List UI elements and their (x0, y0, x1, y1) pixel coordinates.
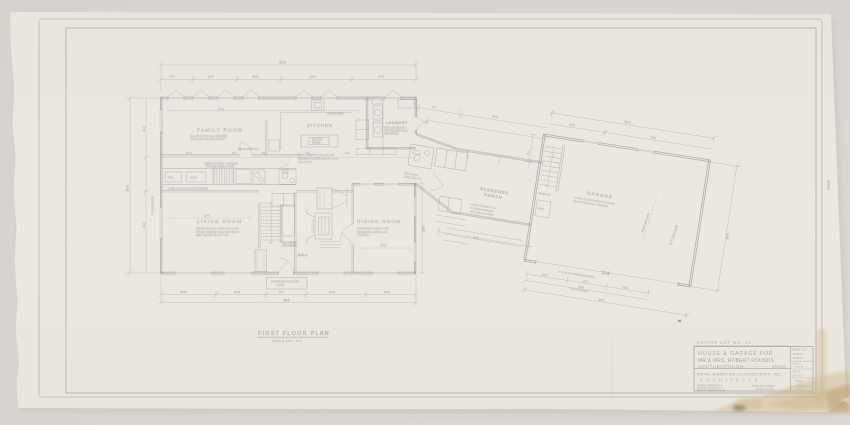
svg-text:VAN: VAN (168, 177, 173, 180)
svg-text:7-8: 7-8 (170, 75, 175, 79)
svg-text:24-6: 24-6 (422, 225, 426, 232)
svg-text:DRAWN CHK: DRAWN CHK (793, 349, 808, 352)
svg-text:10-0: 10-0 (234, 290, 240, 294)
svg-text:ARCHITECTS: ARCHITECTS (700, 378, 761, 383)
svg-text:17-2: 17-2 (218, 107, 224, 111)
svg-text:ROYAL BARRY WILLS ASSOCIATES,: ROYAL BARRY WILLS ASSOCIATES, INC. (697, 372, 782, 377)
svg-text:4 FLUSH DOORS: 4 FLUSH DOORS (152, 195, 155, 215)
svg-text:KITCHEN: KITCHEN (307, 123, 333, 128)
svg-text:BOSTON, MASS.: BOSTON, MASS. (756, 388, 774, 391)
svg-text:HOUSE & GARAGE FOR: HOUSE & GARAGE FOR (698, 351, 774, 357)
svg-text:18-0: 18-0 (204, 214, 210, 218)
svg-text:13-6: 13-6 (380, 244, 386, 248)
svg-text:12-0: 12-0 (329, 290, 335, 294)
svg-text:DINING ROOM: DINING ROOM (357, 219, 401, 225)
svg-text:FAMILY ROOM: FAMILY ROOM (197, 128, 243, 134)
svg-text:VINYL ASB TILE FLR: VINYL ASB TILE FLR (384, 127, 406, 130)
svg-text:MERTON BARROWS A.I.A.: MERTON BARROWS A.I.A. (697, 389, 726, 392)
svg-text:10-0: 10-0 (252, 75, 258, 79)
svg-text:SOUTHBOROUGH: SOUTHBOROUGH (698, 364, 744, 369)
svg-text:CLG HT 7-6: CLG HT 7-6 (298, 161, 312, 164)
svg-text:3-4: 3-4 (232, 151, 236, 155)
svg-text:15-0: 15-0 (180, 290, 186, 294)
svg-text:SCALE 1/4 = 1-0: SCALE 1/4 = 1-0 (272, 339, 302, 343)
svg-text:+ STEP: + STEP (276, 284, 285, 287)
svg-text:11-25-57: 11-25-57 (793, 356, 804, 360)
svg-text:10-0: 10-0 (208, 75, 214, 79)
svg-text:ROD AND SHELF OVER: ROD AND SHELF OVER (206, 166, 234, 169)
svg-text:ESTATE LOT NO. 24: ESTATE LOT NO. 24 (697, 340, 752, 345)
svg-text:SCALE: SCALE (793, 371, 801, 374)
svg-text:10-6: 10-6 (142, 126, 146, 132)
svg-text:WOOD STRIP CLG: WOOD STRIP CLG (238, 148, 259, 151)
svg-text:HALL: HALL (298, 253, 308, 257)
svg-text:6-8: 6-8 (345, 151, 349, 155)
svg-text:PTD PLASTER WALLS: PTD PLASTER WALLS (384, 130, 409, 133)
svg-text:CORK TILE FLOOR PTD PLASTER: CORK TILE FLOOR PTD PLASTER (168, 188, 208, 191)
svg-text:FIRST FLOOR PLAN: FIRST FLOOR PLAN (258, 331, 330, 337)
svg-text:PTD RISERS: PTD RISERS (282, 245, 296, 247)
svg-text:10-28-57: 10-28-57 (793, 352, 804, 356)
svg-text:13-0: 13-0 (142, 222, 146, 228)
svg-text:CLOS: CLOS (190, 177, 197, 180)
svg-text:PLASTER: PLASTER (357, 233, 369, 237)
svg-text:3-0: 3-0 (306, 151, 310, 155)
svg-text:4500: 4500 (826, 179, 831, 190)
svg-text:46-0: 46-0 (279, 61, 286, 65)
svg-text:LIVING ROOM: LIVING ROOM (197, 219, 242, 225)
svg-text:5-8: 5-8 (262, 151, 266, 155)
svg-text:10-0: 10-0 (384, 290, 390, 294)
svg-text:10-0: 10-0 (186, 151, 192, 155)
svg-text:ROYAL B. WILLS F.A.I.A.: ROYAL B. WILLS F.A.I.A. (697, 384, 723, 387)
svg-text:~~~~~~~~: ~~~~~~~~ (795, 408, 812, 412)
svg-text:MASS.: MASS. (772, 364, 788, 369)
svg-text:OAK TREADS: OAK TREADS (282, 242, 297, 245)
svg-text:COAT CLOSET: COAT CLOSET (327, 113, 344, 116)
svg-text:46-0: 46-0 (283, 299, 290, 303)
svg-text:OAK PLNK FLR PINE WALLS: OAK PLNK FLR PINE WALLS (190, 137, 225, 141)
svg-text:5 7 8: 5 7 8 (796, 365, 803, 369)
svg-text:1/4 = 1-0: 1/4 = 1-0 (793, 374, 804, 378)
svg-text:AND CEILING: AND CEILING (384, 133, 399, 136)
svg-text:14-3: 14-3 (378, 75, 384, 79)
svg-text:ISLAND: ISLAND (312, 142, 321, 145)
svg-text:WARREN RHOADS A.I.A.: WARREN RHOADS A.I.A. (697, 387, 724, 390)
svg-text:24-6: 24-6 (126, 185, 130, 192)
svg-text:8 CHAUNCY STREET: 8 CHAUNCY STREET (752, 385, 776, 388)
svg-text:14-2: 14-2 (310, 75, 316, 79)
svg-text:8-0: 8-0 (279, 290, 284, 294)
svg-text:AND CEILING CLG HT 7-10: AND CEILING CLG HT 7-10 (196, 233, 229, 237)
svg-text:LAUNDRY: LAUNDRY (386, 121, 408, 125)
